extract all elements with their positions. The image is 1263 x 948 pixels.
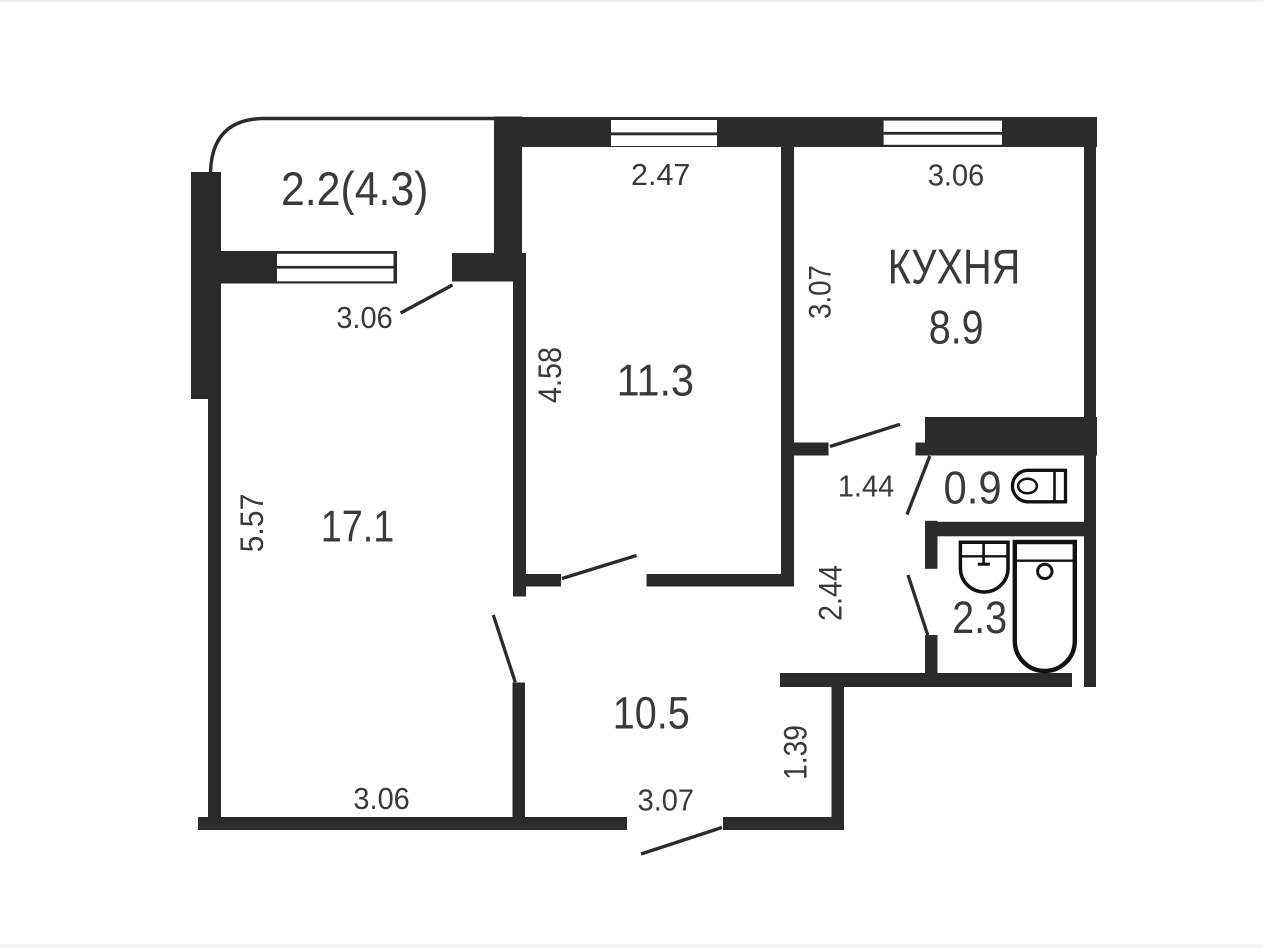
svg-text:4.58: 4.58 — [533, 347, 569, 403]
svg-text:11.3: 11.3 — [617, 356, 694, 406]
svg-text:8.9: 8.9 — [929, 302, 984, 354]
svg-text:2.44: 2.44 — [813, 565, 849, 621]
svg-text:1.44: 1.44 — [838, 470, 894, 504]
svg-text:2.2(4.3): 2.2(4.3) — [281, 162, 428, 215]
svg-text:0.9: 0.9 — [944, 463, 1002, 515]
svg-text:3.06: 3.06 — [928, 159, 984, 193]
svg-text:3.07: 3.07 — [803, 265, 838, 319]
svg-text:10.5: 10.5 — [613, 688, 690, 739]
svg-text:17.1: 17.1 — [321, 502, 395, 552]
svg-text:2.47: 2.47 — [631, 158, 690, 192]
svg-text:3.06: 3.06 — [353, 782, 409, 816]
svg-text:КУХНЯ: КУХНЯ — [888, 240, 1021, 294]
svg-text:5.57: 5.57 — [234, 494, 270, 553]
svg-text:3.06: 3.06 — [336, 301, 392, 335]
svg-text:2.3: 2.3 — [952, 592, 1007, 643]
svg-text:1.39: 1.39 — [779, 725, 814, 780]
svg-text:3.07: 3.07 — [638, 784, 694, 818]
